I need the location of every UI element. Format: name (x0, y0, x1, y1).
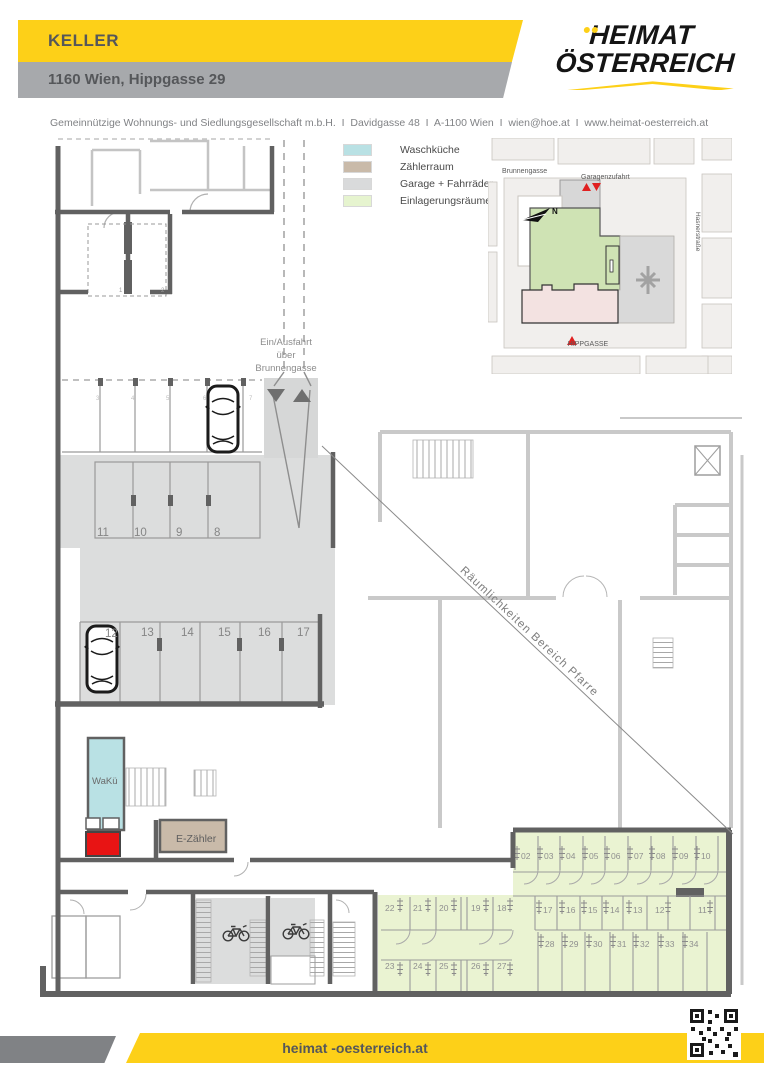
parking-space-number: 12 (105, 628, 118, 640)
parking-space-number: 14 (181, 627, 194, 639)
svg-text:7: 7 (249, 396, 253, 402)
stairs (413, 440, 473, 478)
parking-space-number: 15 (218, 627, 231, 639)
room-fills (58, 378, 731, 995)
storage-room-number: 29 (569, 939, 579, 949)
parking-space-number: 17 (297, 627, 310, 639)
parking-space-number: 16 (258, 627, 271, 639)
storage-room-number: 12 (655, 905, 665, 915)
zaehlerraum-label: E-Zähler (176, 833, 217, 845)
lift-shaft-red (86, 832, 120, 856)
storage-room-number: 34 (689, 939, 699, 949)
storage-room-number: 15 (588, 905, 598, 915)
stairs (194, 770, 216, 796)
parking-space-number: 8 (214, 527, 220, 539)
storage-room-number: 33 (665, 939, 675, 949)
storage-room-number: 24 (413, 961, 423, 971)
parking-space-number: 9 (176, 527, 182, 539)
storage-room-number: 23 (385, 961, 395, 971)
storage-room-number: 14 (610, 905, 620, 915)
parking-space-number: 10 (134, 527, 147, 539)
ramp-label: über (276, 350, 295, 361)
storage-room-number: 32 (640, 939, 650, 949)
waschkueche-label: WaKü (92, 776, 118, 787)
storage-room-number: 03 (544, 851, 554, 861)
storage-room-number: 10 (701, 851, 711, 861)
storage-room-number: 08 (656, 851, 666, 861)
storage-room-number: 19 (471, 903, 481, 913)
storage-room-number: 05 (589, 851, 599, 861)
storage-room-number: 22 (385, 903, 395, 913)
parking-space-number: 13 (141, 627, 154, 639)
bike-rack (250, 920, 266, 976)
storage-room-number: 31 (617, 939, 627, 949)
storage-room-number: 11 (698, 905, 707, 915)
storage-room-number: 25 (439, 961, 449, 971)
stairs (126, 768, 166, 806)
upper-light-rooms (92, 141, 274, 228)
storage-room-number: 28 (545, 939, 555, 949)
ramp-label: Ein/Ausfahrt (260, 337, 312, 348)
bike-rack (196, 900, 211, 982)
storage-room-number: 09 (679, 851, 689, 861)
parking-space-number: 11 (97, 527, 109, 539)
storage-room-number: 27 (497, 961, 507, 971)
storage-room-number: 26 (471, 961, 481, 971)
storage-room-number: 17 (543, 905, 553, 915)
storage-room-number: 30 (593, 939, 603, 949)
bike-rack (310, 920, 324, 976)
storage-room-number: 07 (634, 851, 644, 861)
stairs (333, 922, 355, 976)
footer-gray-bar (0, 1036, 116, 1063)
storage-room-number: 02 (521, 851, 531, 861)
storage-room-number: 06 (611, 851, 621, 861)
footer-yellow-bar: heimat -oesterreich.at (126, 1033, 764, 1063)
svg-text:1: 1 (119, 288, 123, 294)
qr-code (687, 1006, 741, 1060)
storage-room-number: 16 (566, 905, 576, 915)
ramp-label: Brunnengasse (255, 363, 316, 374)
double-door-arcs (563, 576, 607, 597)
page: KELLER 1160 Wien, Hippgasse 29 HEIMAT ÖS… (0, 0, 764, 1080)
storage-room-number: 18 (497, 903, 507, 913)
storage-room-number: 13 (633, 905, 643, 915)
storage-room-number: 20 (439, 903, 449, 913)
storage-room-number: 04 (566, 851, 576, 861)
storage-room-number: 21 (413, 903, 423, 913)
footer-website: heimat -oesterreich.at (126, 1040, 584, 1056)
floor-plan: Ein/Ausfahrt über Brunnengasse WaKü E-Zä… (0, 0, 764, 1080)
stairs (653, 638, 673, 668)
car-icon (206, 386, 240, 452)
